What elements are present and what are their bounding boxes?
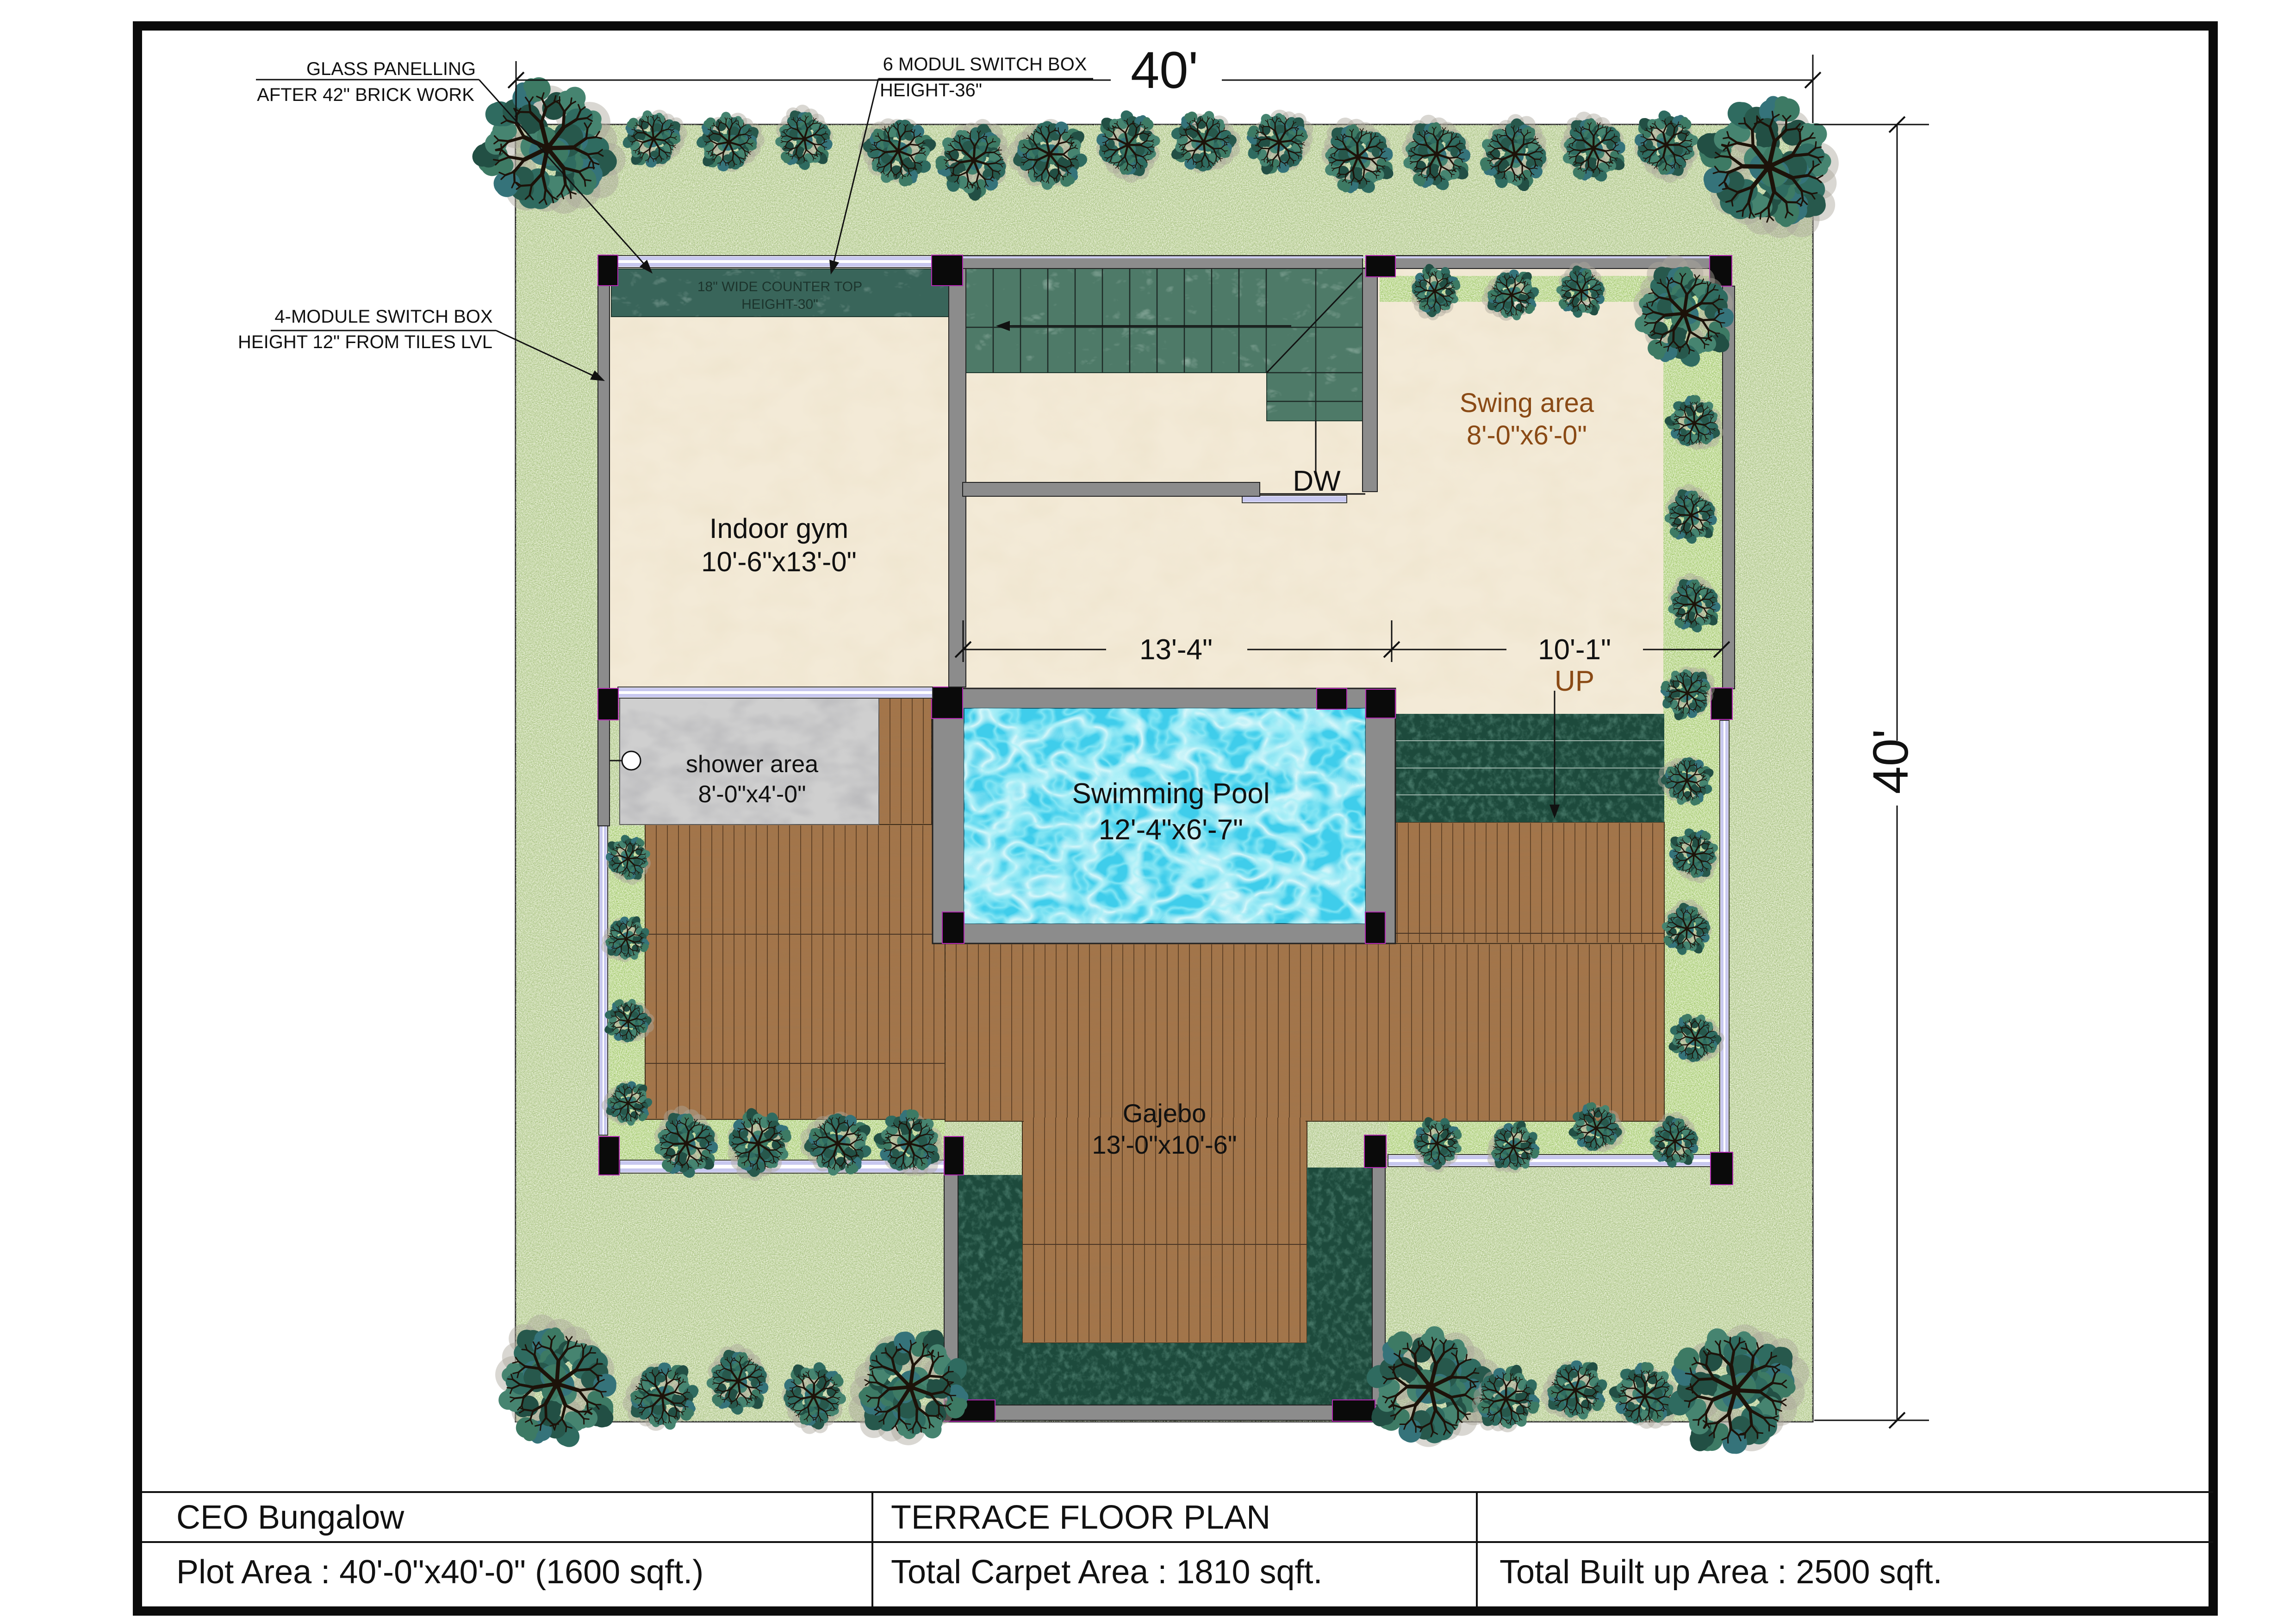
svg-text:8'-0"x6'-0": 8'-0"x6'-0" [1467,420,1587,450]
svg-text:HEIGHT 12" FROM TILES LVL: HEIGHT 12" FROM TILES LVL [238,332,492,352]
svg-text:TERRACE FLOOR PLAN: TERRACE FLOOR PLAN [891,1499,1270,1536]
svg-text:13'-0"x10'-6": 13'-0"x10'-6" [1092,1130,1237,1159]
svg-text:UP: UP [1555,665,1594,697]
svg-text:Total Built up Area : 2500 sqf: Total Built up Area : 2500 sqft. [1500,1554,1942,1591]
svg-text:Swimming Pool: Swimming Pool [1072,778,1269,810]
svg-text:4-MODULE SWITCH BOX: 4-MODULE SWITCH BOX [274,306,492,327]
svg-text:HEIGHT-30": HEIGHT-30" [741,297,818,312]
svg-text:8'-0"x4'-0": 8'-0"x4'-0" [698,781,806,808]
svg-text:Total Carpet Area : 1810 sqft.: Total Carpet Area : 1810 sqft. [891,1554,1323,1591]
svg-text:HEIGHT-36": HEIGHT-36" [880,80,982,100]
svg-text:AFTER 42" BRICK WORK: AFTER 42" BRICK WORK [257,85,474,105]
svg-text:10'-6"x13'-0": 10'-6"x13'-0" [701,546,857,577]
svg-text:CEO Bungalow: CEO Bungalow [176,1499,404,1536]
svg-text:Gajebo: Gajebo [1123,1099,1207,1128]
svg-text:10'-1": 10'-1" [1538,634,1611,666]
svg-text:40': 40' [1862,729,1918,794]
svg-text:Plot Area : 40'-0"x40'-0" (160: Plot Area : 40'-0"x40'-0" (1600 sqft.) [176,1554,703,1591]
svg-text:Indoor gym: Indoor gym [709,513,848,544]
svg-text:12'-4"x6'-7": 12'-4"x6'-7" [1099,814,1243,846]
svg-text:shower area: shower area [686,751,818,778]
svg-text:13'-4": 13'-4" [1139,634,1213,666]
svg-text:Swing area: Swing area [1460,388,1594,418]
svg-text:GLASS PANELLING: GLASS PANELLING [306,59,476,79]
svg-text:18" WIDE COUNTER TOP: 18" WIDE COUNTER TOP [697,279,862,294]
svg-text:6 MODUL SWITCH BOX: 6 MODUL SWITCH BOX [883,54,1087,75]
svg-text:DW: DW [1293,465,1341,497]
svg-text:40': 40' [1131,41,1198,99]
